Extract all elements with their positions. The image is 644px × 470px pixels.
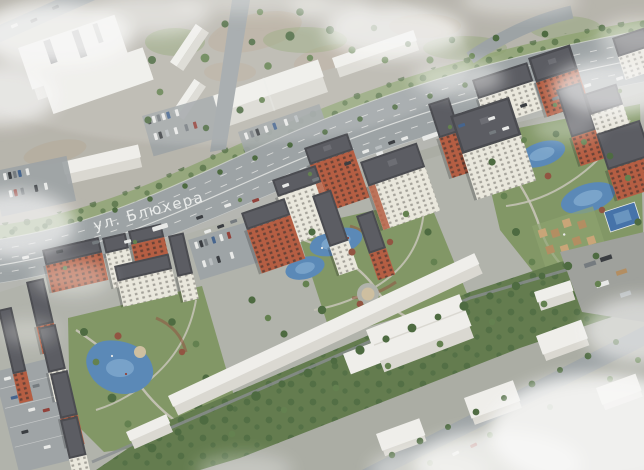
light-wash [0,0,644,470]
aerial-render-canvas: ул. Блюхера [0,0,644,470]
masterplan-render: ул. Блюхера [0,0,644,470]
